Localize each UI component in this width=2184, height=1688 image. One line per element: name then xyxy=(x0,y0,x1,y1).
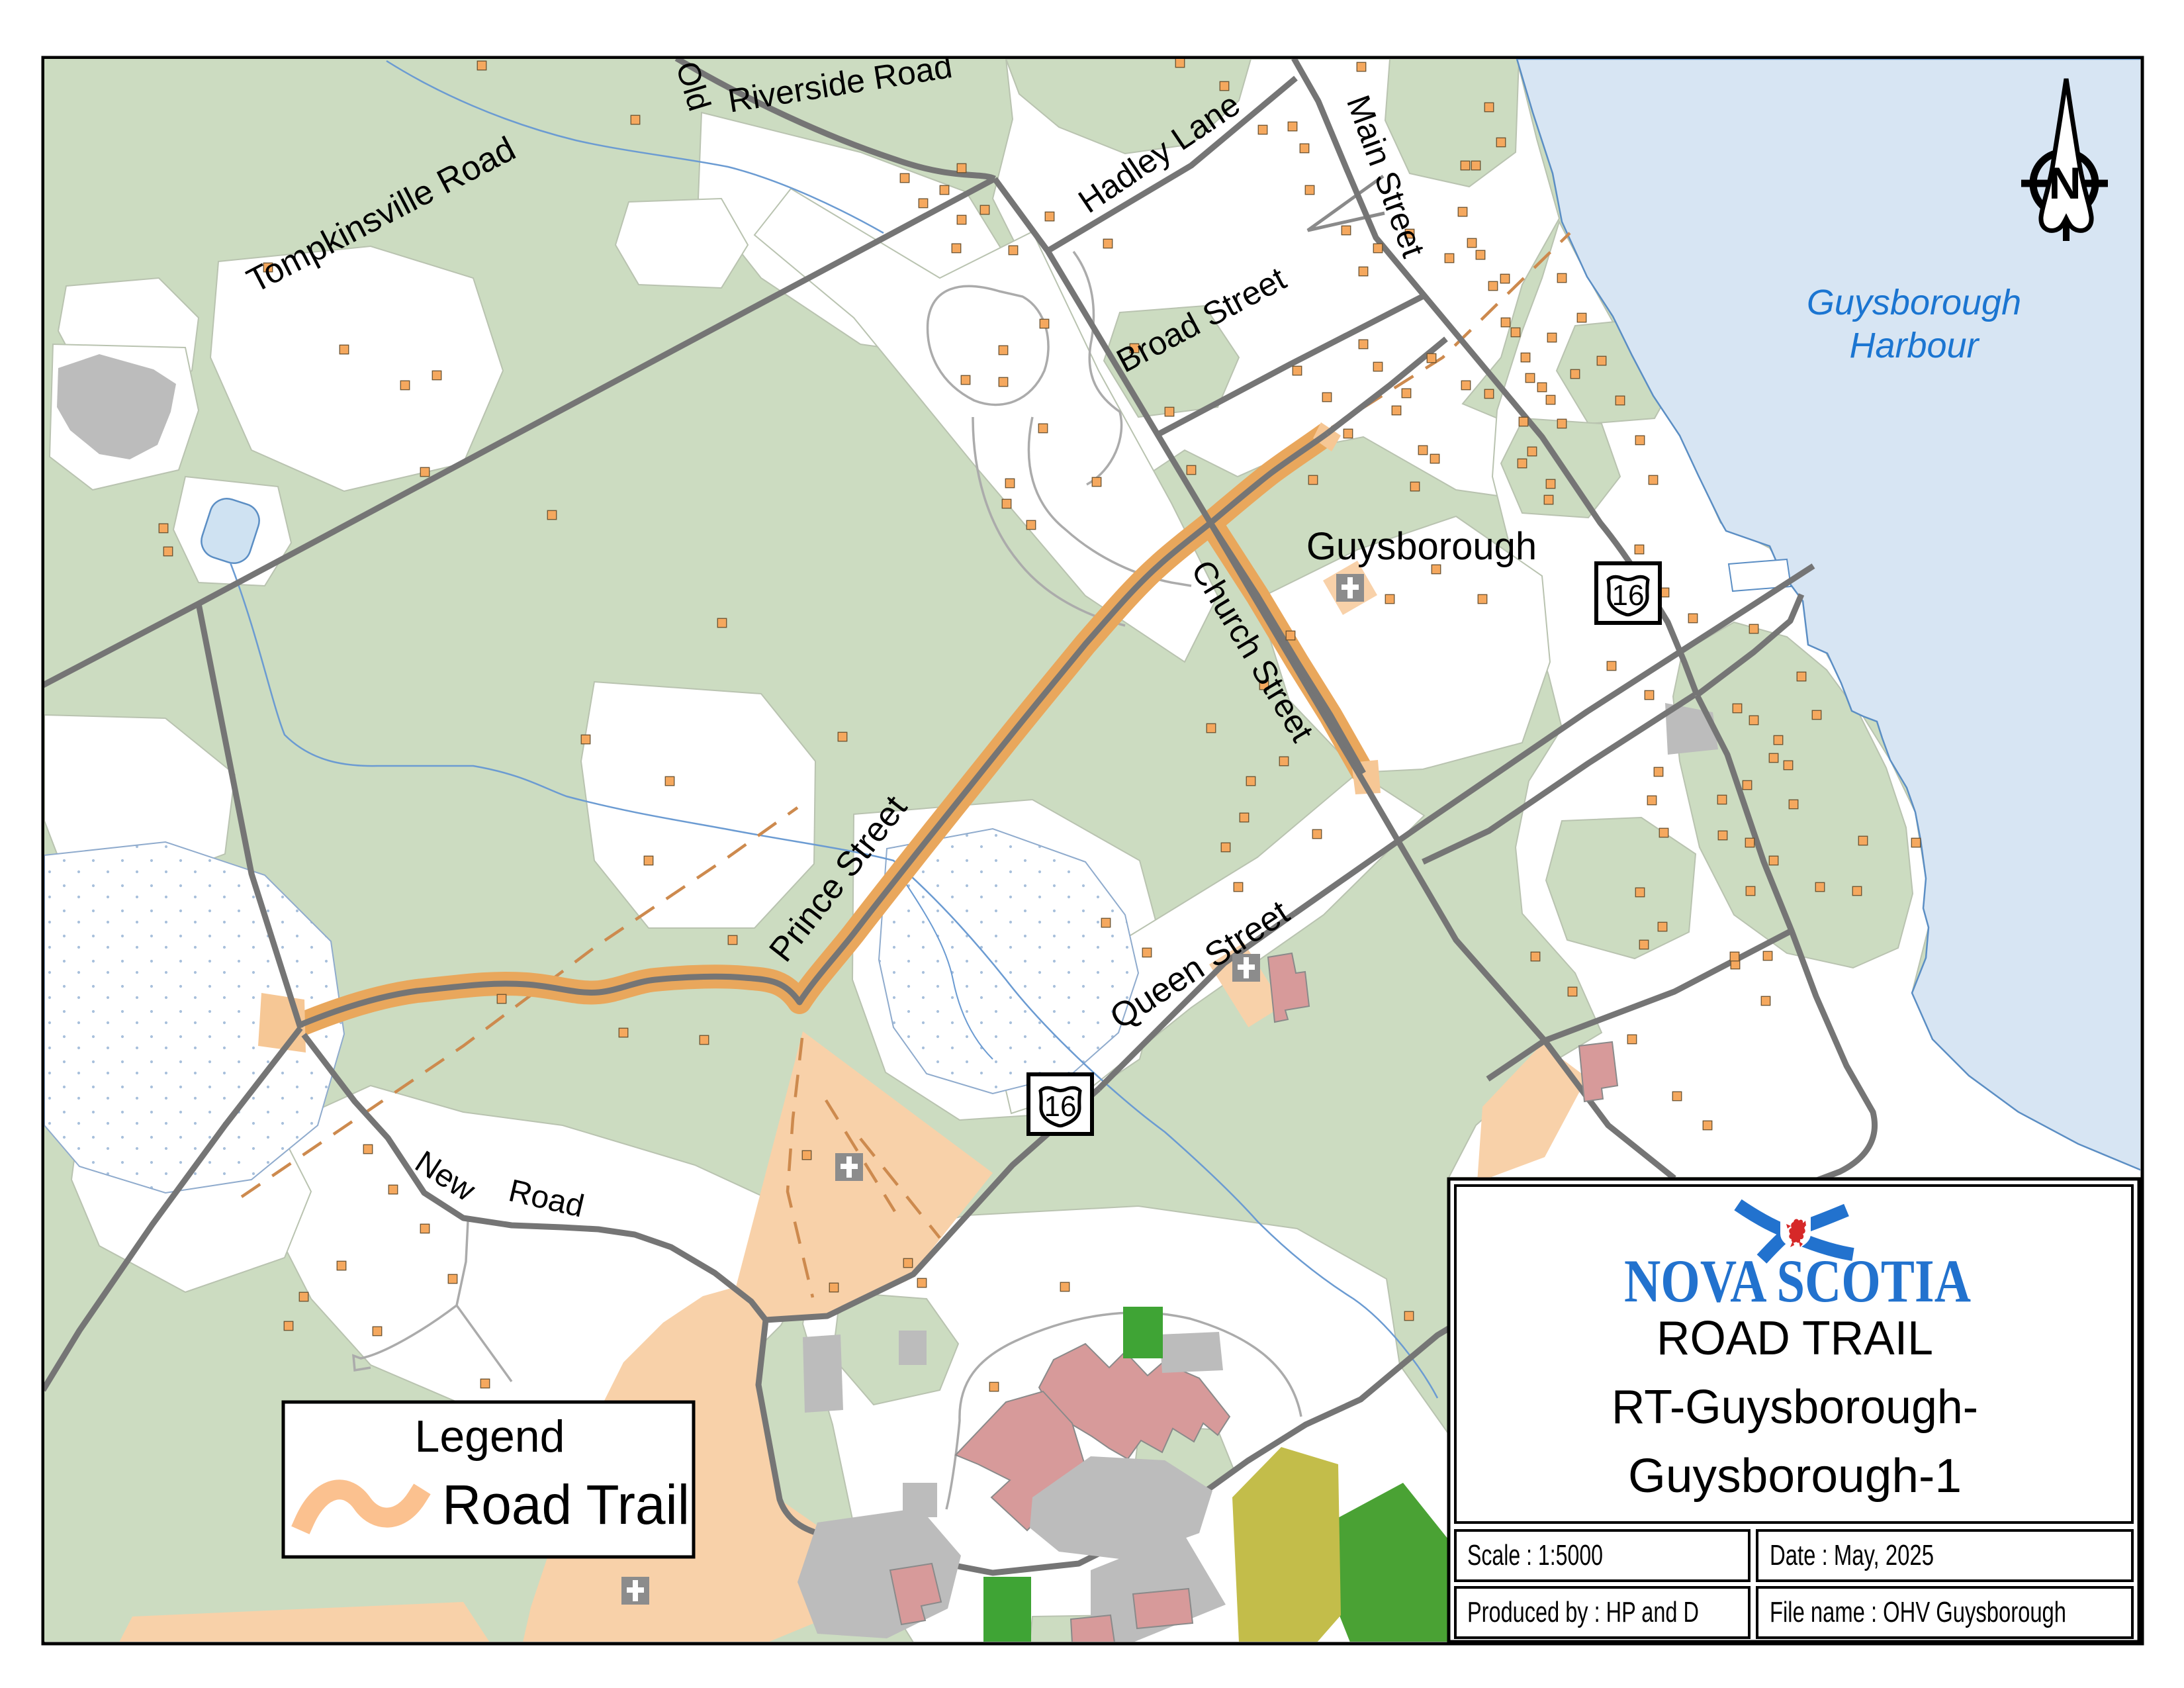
svg-text:Harbour: Harbour xyxy=(1849,326,1979,365)
svg-text:RT-Guysborough-: RT-Guysborough- xyxy=(1612,1381,1978,1434)
svg-text:Produced by : HP and D: Produced by : HP and D xyxy=(1467,1596,1699,1628)
svg-text:Date : May, 2025: Date : May, 2025 xyxy=(1770,1539,1934,1571)
svg-text:ROAD TRAIL: ROAD TRAIL xyxy=(1657,1312,1933,1365)
svg-text:N: N xyxy=(2048,158,2081,209)
svg-text:Road Trail: Road Trail xyxy=(442,1474,690,1536)
svg-text:Scale : 1:5000: Scale : 1:5000 xyxy=(1467,1539,1603,1571)
svg-text:Guysborough-1: Guysborough-1 xyxy=(1628,1450,1962,1503)
svg-text:File name : OHV Guysborough: File name : OHV Guysborough xyxy=(1770,1596,2066,1628)
svg-text:NOVA SCOTIA: NOVA SCOTIA xyxy=(1624,1247,1971,1315)
svg-text:16: 16 xyxy=(1044,1090,1077,1123)
svg-text:Guysborough: Guysborough xyxy=(1306,525,1537,568)
svg-text:Legend: Legend xyxy=(415,1411,565,1462)
svg-text:Guysborough: Guysborough xyxy=(1807,283,2021,322)
svg-text:16: 16 xyxy=(1612,579,1645,612)
